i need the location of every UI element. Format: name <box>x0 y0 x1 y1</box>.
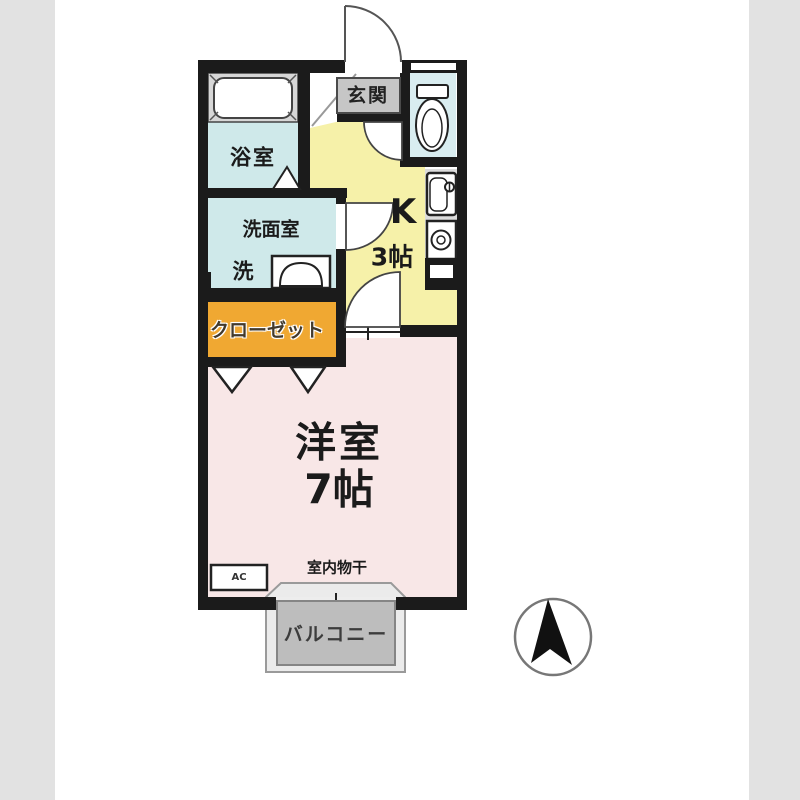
toilet-window <box>411 63 456 70</box>
wall-left <box>198 60 208 610</box>
western-room-size: 7帖 <box>304 470 374 511</box>
entrance-door-arc <box>345 6 401 62</box>
indoor-drying-label: 室内物干 <box>307 561 367 576</box>
washroom-label: 洗面室 <box>242 221 299 240</box>
kitchen-window <box>430 265 453 278</box>
wall-kitchen-bottom <box>400 325 457 337</box>
floorplan-page: 玄関 浴室 洗面室 洗 クローゼット K 3帖 洋室 7帖 室内物干 AC バル… <box>0 0 800 800</box>
ac-label: AC <box>231 573 246 583</box>
washroom-doorway-gap <box>336 204 346 249</box>
stove-icon <box>427 221 456 259</box>
kitchen-label: K <box>390 195 416 229</box>
kitchen-size-label: 3帖 <box>371 245 413 270</box>
wall-entrance-bottom <box>337 113 407 122</box>
north-arrow-icon <box>515 599 591 675</box>
wall-bathroom-right <box>298 60 310 198</box>
wall-toilet-bottom <box>400 157 457 167</box>
wall-closet-top <box>198 288 336 302</box>
entrance-doorway-gap <box>345 60 402 73</box>
kitchen-counter <box>425 169 457 261</box>
balcony-label: バルコニー <box>284 626 389 645</box>
western-room-label: 洋室 <box>295 423 383 464</box>
bathroom-label: 浴室 <box>230 148 276 169</box>
wall-right <box>457 60 467 610</box>
bathtub-icon <box>208 73 298 122</box>
wall-closet-bottom <box>198 357 346 367</box>
closet-label: クローゼット <box>210 322 324 341</box>
floorplan-drawing <box>0 0 800 800</box>
washing-machine-icon <box>272 256 330 288</box>
washer-label: 洗 <box>233 262 254 283</box>
wall-pipe-space <box>198 272 211 296</box>
toilet-icon <box>416 85 448 151</box>
entrance-label: 玄関 <box>347 87 389 106</box>
sink-icon <box>427 173 456 215</box>
